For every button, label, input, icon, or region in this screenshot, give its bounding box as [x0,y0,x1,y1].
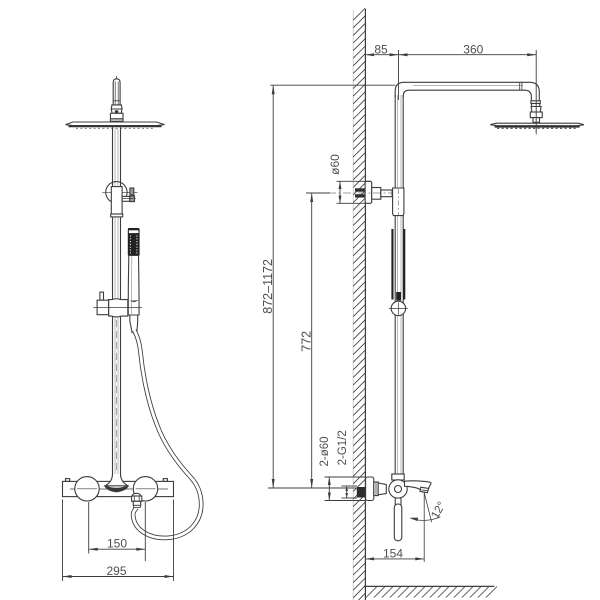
svg-text:2-G1/2: 2-G1/2 [337,430,349,465]
svg-text:85: 85 [374,43,388,57]
svg-text:12°: 12° [429,500,448,521]
svg-text:772: 772 [299,331,313,352]
svg-text:154: 154 [383,546,403,560]
svg-text:2-ø60: 2-ø60 [319,436,331,466]
svg-text:150: 150 [107,537,127,551]
svg-text:295: 295 [106,564,126,578]
svg-text:872–1172: 872–1172 [261,259,275,314]
svg-text:ø60: ø60 [328,154,342,175]
svg-text:360: 360 [463,43,483,57]
